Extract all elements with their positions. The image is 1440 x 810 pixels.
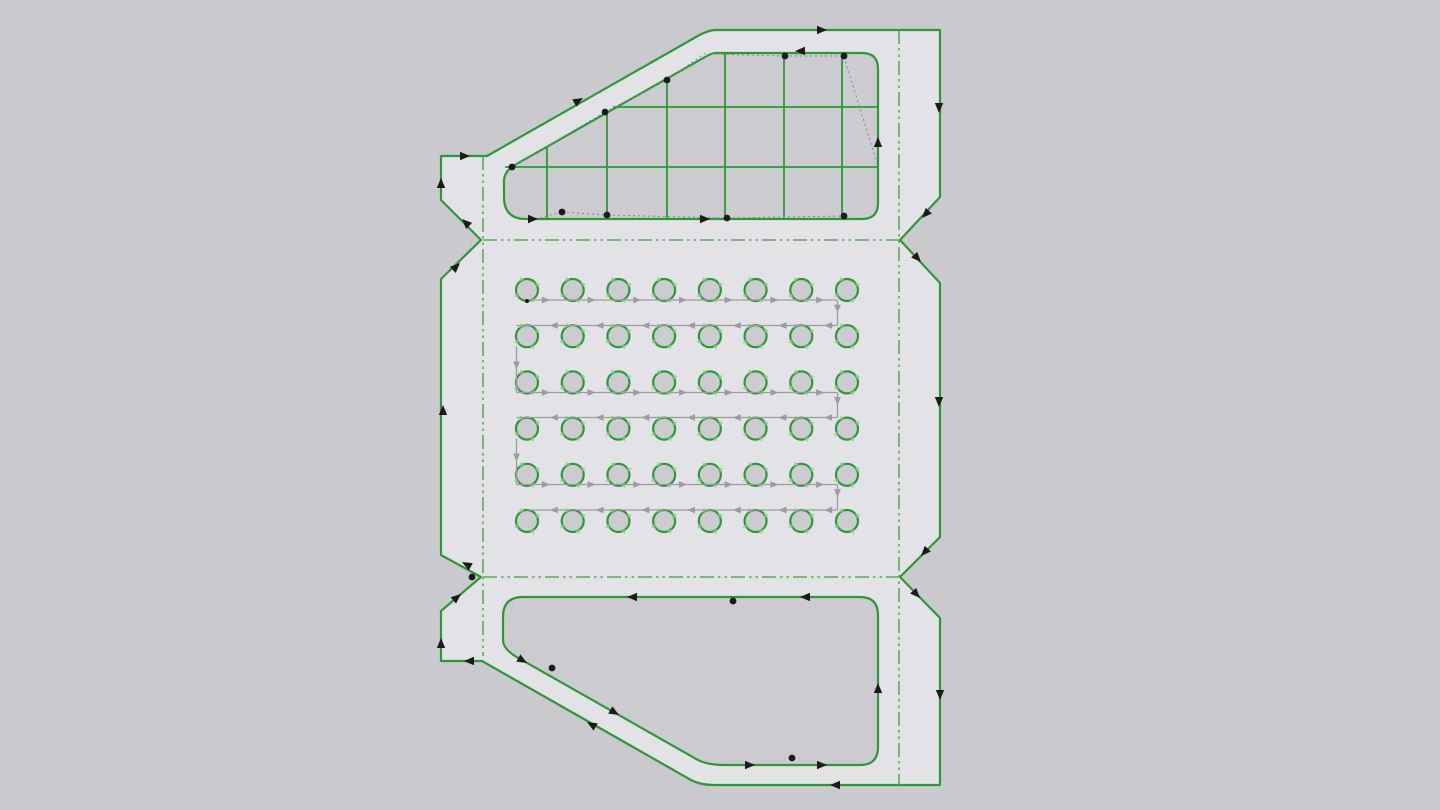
hole-circle[interactable] (562, 464, 584, 486)
hole-circle[interactable] (607, 510, 629, 532)
hole-circle[interactable] (516, 510, 538, 532)
hole-circle[interactable] (699, 510, 721, 532)
hole-circle[interactable] (836, 418, 858, 440)
hole-circle[interactable] (699, 371, 721, 393)
hole-circle[interactable] (653, 325, 675, 347)
path-point (841, 53, 848, 60)
hole-circle[interactable] (653, 418, 675, 440)
hole-circle[interactable] (516, 279, 538, 301)
path-point (730, 598, 737, 605)
path-point (559, 209, 566, 216)
hole-circle[interactable] (516, 464, 538, 486)
toolpath-start-point (525, 299, 529, 303)
hole-circle[interactable] (516, 371, 538, 393)
hole-circle[interactable] (745, 279, 767, 301)
path-point (841, 213, 848, 220)
graphics-area[interactable] (0, 0, 1440, 810)
hole-circle[interactable] (745, 464, 767, 486)
path-point (604, 212, 611, 219)
hole-circle[interactable] (836, 371, 858, 393)
hole-circle[interactable] (653, 279, 675, 301)
hole-circle[interactable] (653, 371, 675, 393)
hole-circle[interactable] (790, 279, 812, 301)
hole-circle[interactable] (790, 510, 812, 532)
hole-circle[interactable] (607, 279, 629, 301)
hole-circle[interactable] (836, 325, 858, 347)
path-point (724, 215, 731, 222)
hole-circle[interactable] (653, 464, 675, 486)
path-point (789, 755, 796, 762)
hole-circle[interactable] (653, 510, 675, 532)
hole-circle[interactable] (745, 510, 767, 532)
hole-circle[interactable] (607, 418, 629, 440)
hole-circle[interactable] (745, 418, 767, 440)
hole-circle[interactable] (699, 325, 721, 347)
path-point (664, 77, 671, 84)
hole-circle[interactable] (836, 464, 858, 486)
hole-circle[interactable] (516, 418, 538, 440)
hole-circle[interactable] (607, 371, 629, 393)
hole-circle[interactable] (699, 279, 721, 301)
hole-circle[interactable] (790, 325, 812, 347)
hole-circle[interactable] (607, 325, 629, 347)
cad-viewport[interactable] (0, 0, 1440, 810)
hole-circle[interactable] (790, 371, 812, 393)
hole-circle[interactable] (836, 279, 858, 301)
hole-circle[interactable] (516, 325, 538, 347)
hole-circle[interactable] (562, 510, 584, 532)
hole-circle[interactable] (607, 464, 629, 486)
hole-circle[interactable] (699, 464, 721, 486)
hole-circle[interactable] (790, 418, 812, 440)
hole-circle[interactable] (790, 464, 812, 486)
hole-circle[interactable] (699, 418, 721, 440)
hole-circle[interactable] (562, 418, 584, 440)
hole-circle[interactable] (836, 510, 858, 532)
hole-circle[interactable] (562, 371, 584, 393)
path-point (549, 665, 556, 672)
hole-circle[interactable] (745, 325, 767, 347)
path-point (782, 53, 789, 60)
hole-circle[interactable] (562, 279, 584, 301)
hole-circle[interactable] (745, 371, 767, 393)
hole-circle[interactable] (562, 325, 584, 347)
path-point (469, 574, 476, 581)
path-point (602, 109, 609, 116)
path-point (509, 164, 516, 171)
